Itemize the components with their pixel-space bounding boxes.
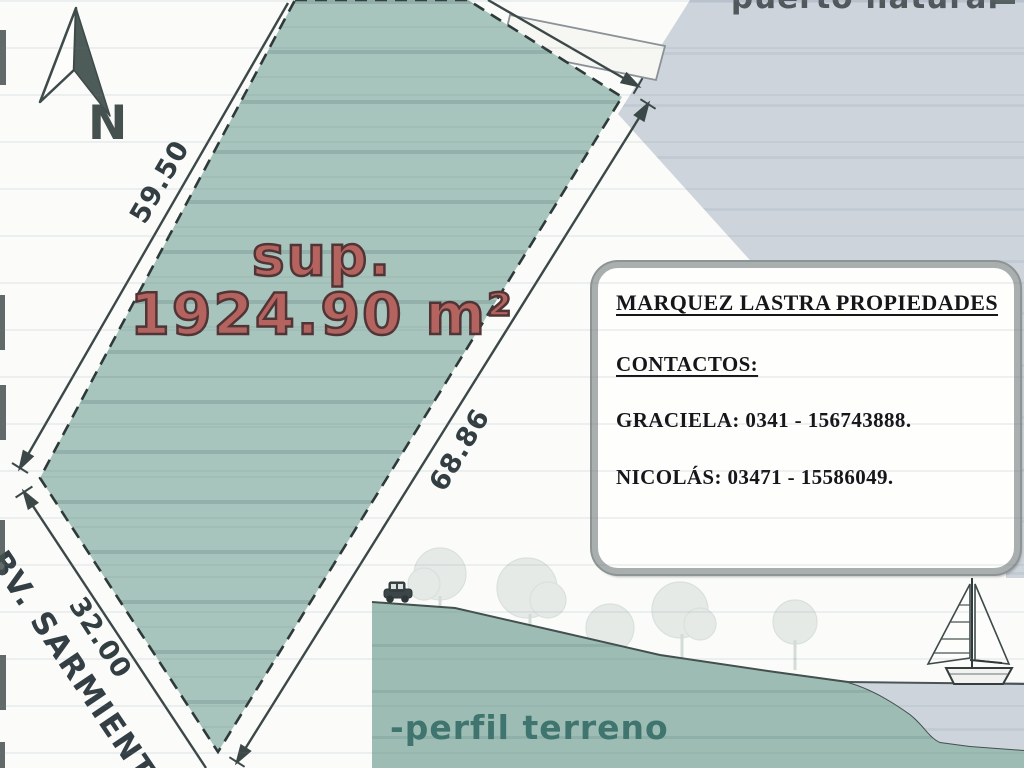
scan-artifact <box>0 520 5 575</box>
contact-card: MARQUEZ LASTRA PROPIEDADES CONTACTOS: GR… <box>592 262 1020 574</box>
sailboat-icon <box>928 578 1012 684</box>
scan-artifact <box>0 655 6 710</box>
scan-artifact <box>0 742 5 768</box>
area-value: 1924.90 m² <box>122 286 522 346</box>
contact-card-title: MARQUEZ LASTRA PROPIEDADES <box>616 290 998 316</box>
scan-artifact <box>0 385 6 440</box>
area-label: sup. <box>122 228 522 286</box>
north-label: N <box>88 96 127 151</box>
scan-artifact <box>0 30 6 85</box>
contact-card-subtitle: CONTACTOS: <box>616 352 758 377</box>
parcel-area-text: sup. 1924.90 m² <box>122 228 522 346</box>
contact-nicolas: NICOLÁS: 03471 - 15586049. <box>616 465 894 490</box>
contact-graciela: GRACIELA: 0341 - 156743888. <box>616 408 911 433</box>
profile-label: -perfil terreno <box>390 708 669 747</box>
harbour-label: puerto natural <box>731 0 999 16</box>
survey-plan-scan: 59.50 68.86 32.00 BV. SARMIENTO sup. 192… <box>0 0 1024 768</box>
scan-artifact <box>0 295 5 350</box>
